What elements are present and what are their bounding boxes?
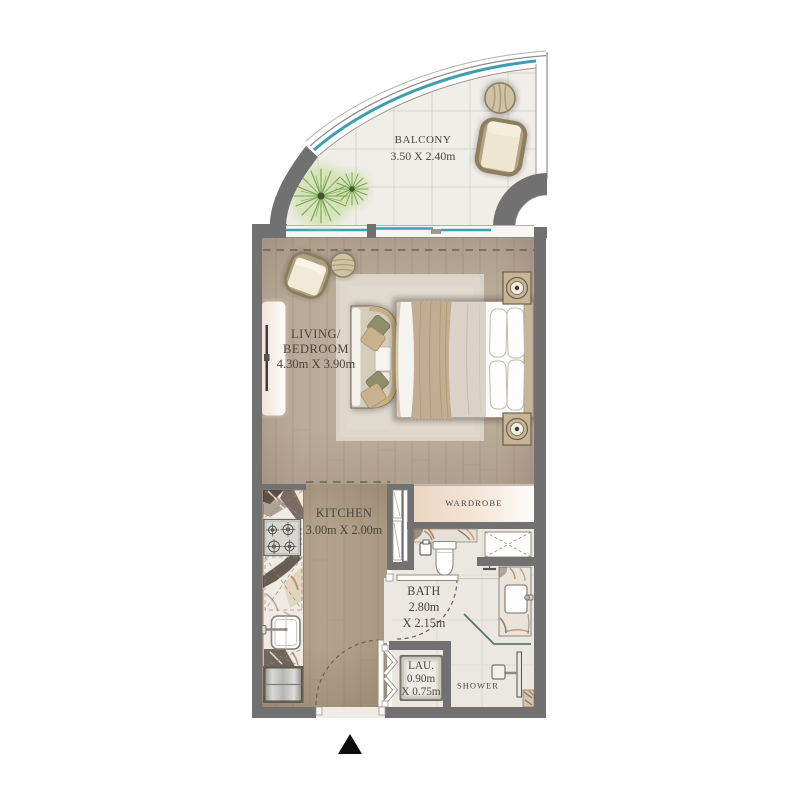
- svg-text:0.90m: 0.90m: [407, 673, 436, 685]
- svg-text:4.30m X 3.90m: 4.30m X 3.90m: [277, 357, 356, 371]
- svg-text:BALCONY: BALCONY: [395, 134, 452, 146]
- svg-text:LAU.: LAU.: [408, 660, 434, 672]
- svg-text:LIVING/: LIVING/: [291, 327, 341, 341]
- svg-text:BEDROOM: BEDROOM: [283, 342, 349, 356]
- svg-text:2.80m: 2.80m: [409, 600, 440, 614]
- svg-text:X 2.15m: X 2.15m: [403, 616, 446, 630]
- svg-text:BATH: BATH: [407, 584, 440, 598]
- svg-text:SHOWER: SHOWER: [457, 681, 499, 691]
- svg-text:3.50 X 2.40m: 3.50 X 2.40m: [391, 149, 456, 163]
- svg-text:3.00m X 2.00m: 3.00m X 2.00m: [306, 523, 383, 537]
- svg-text:WARDROBE: WARDROBE: [445, 498, 502, 508]
- svg-text:KITCHEN: KITCHEN: [316, 506, 372, 520]
- svg-text:X 0.75m: X 0.75m: [401, 686, 440, 698]
